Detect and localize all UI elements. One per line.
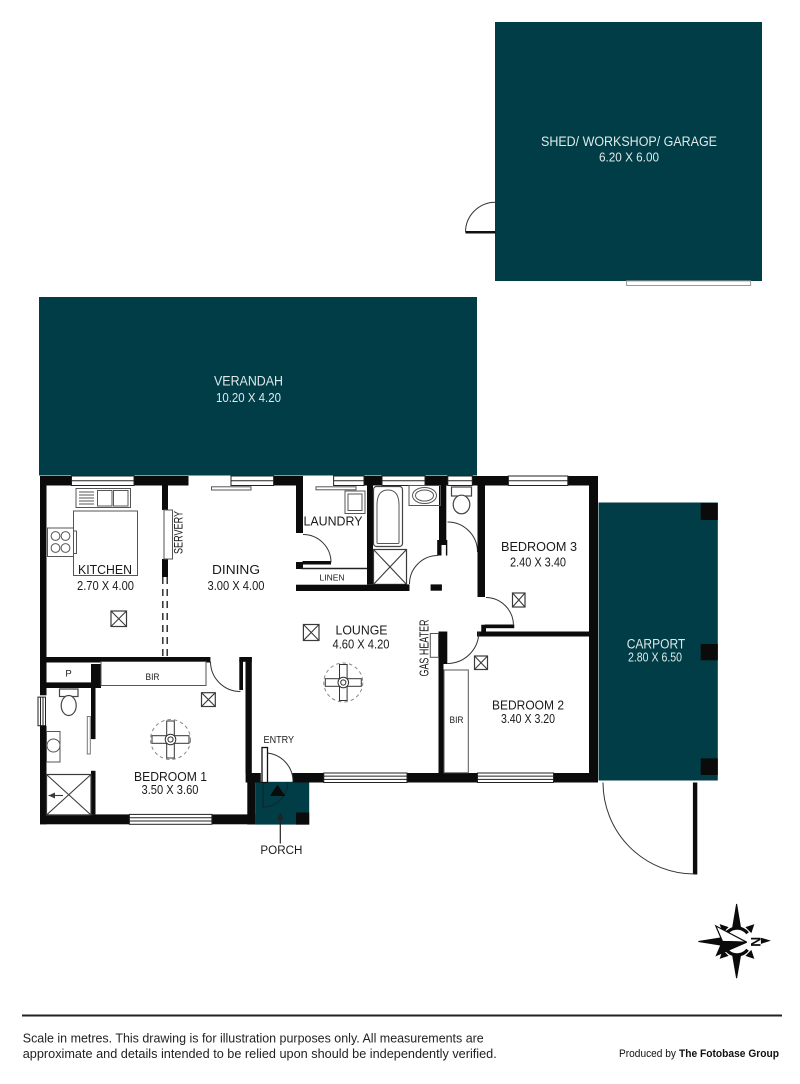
svg-text:BIR: BIR: [146, 672, 160, 682]
svg-text:SHED/ WORKSHOP/ GARAGE: SHED/ WORKSHOP/ GARAGE: [541, 134, 717, 149]
svg-text:PORCH: PORCH: [260, 845, 302, 857]
svg-text:4.60 X 4.20: 4.60 X 4.20: [333, 638, 390, 652]
svg-text:2.40 X 3.40: 2.40 X 3.40: [510, 556, 566, 570]
svg-text:The Fotobase Group: The Fotobase Group: [679, 1048, 779, 1060]
svg-text:3.00 X 4.00: 3.00 X 4.00: [208, 579, 265, 593]
svg-text:CARPORT: CARPORT: [627, 637, 686, 652]
svg-text:SERVERY: SERVERY: [173, 511, 185, 554]
svg-text:2.70 X 4.00: 2.70 X 4.00: [77, 579, 134, 593]
svg-text:LAUNDRY: LAUNDRY: [304, 514, 363, 529]
svg-text:VERANDAH: VERANDAH: [214, 374, 283, 389]
svg-text:3.40 X 3.20: 3.40 X 3.20: [501, 712, 555, 726]
svg-text:3.50 X 3.60: 3.50 X 3.60: [142, 783, 199, 797]
svg-text:LINEN: LINEN: [320, 573, 345, 583]
svg-text:LOUNGE: LOUNGE: [336, 623, 388, 638]
svg-text:P: P: [65, 669, 71, 680]
svg-text:BEDROOM 1: BEDROOM 1: [134, 769, 207, 784]
svg-text:ENTRY: ENTRY: [264, 735, 295, 746]
svg-text:Produced by: Produced by: [619, 1048, 676, 1060]
svg-text:BIR: BIR: [450, 715, 464, 725]
svg-text:BEDROOM 2: BEDROOM 2: [492, 698, 564, 713]
svg-text:Scale in metres. This drawing: Scale in metres. This drawing is for ill…: [23, 1032, 484, 1046]
svg-text:N: N: [748, 937, 764, 947]
svg-text:DINING: DINING: [212, 562, 260, 577]
svg-text:10.20 X 4.20: 10.20 X 4.20: [216, 391, 281, 405]
svg-text:2.80 X 6.50: 2.80 X 6.50: [628, 651, 682, 665]
svg-text:6.20 X 6.00: 6.20 X 6.00: [599, 151, 659, 165]
svg-text:BEDROOM 3: BEDROOM 3: [501, 539, 577, 554]
svg-text:KITCHEN: KITCHEN: [78, 562, 132, 577]
svg-text:approximate and details intend: approximate and details intended to be r…: [23, 1047, 497, 1061]
svg-text:GAS HEATER: GAS HEATER: [417, 620, 431, 677]
